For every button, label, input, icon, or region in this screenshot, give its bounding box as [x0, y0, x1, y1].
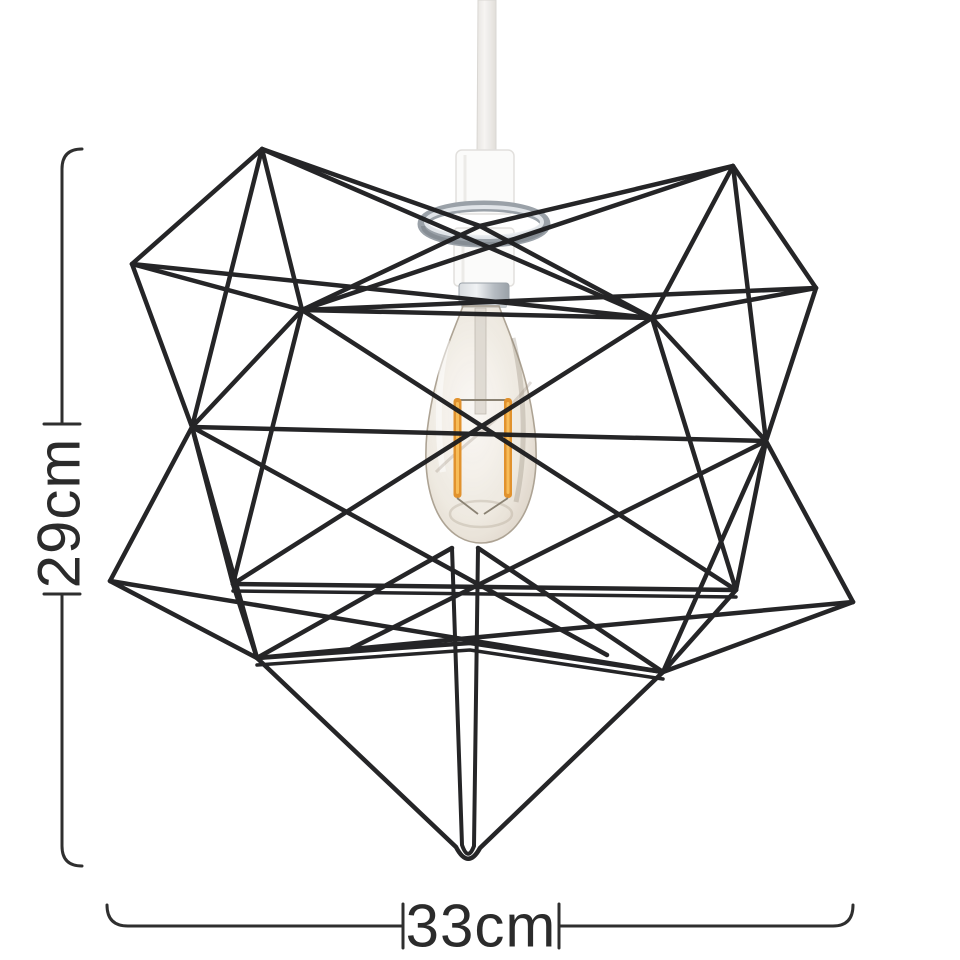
height-label: 29cm	[26, 438, 93, 589]
bulb-stem	[475, 308, 486, 414]
lamp-illustration: 29cm 33cm	[0, 0, 960, 960]
height-dimension-line	[62, 149, 82, 424]
pendant-cord	[477, 0, 496, 154]
width-dimension: 33cm	[107, 893, 853, 960]
product-dimension-image: 29cm 33cm	[0, 0, 960, 960]
width-dimension-line-left	[107, 905, 403, 926]
width-dimension-line-right	[559, 905, 853, 926]
width-label: 33cm	[406, 893, 557, 960]
height-dimension-line-lower	[62, 594, 82, 866]
height-dimension: 29cm	[26, 149, 93, 866]
